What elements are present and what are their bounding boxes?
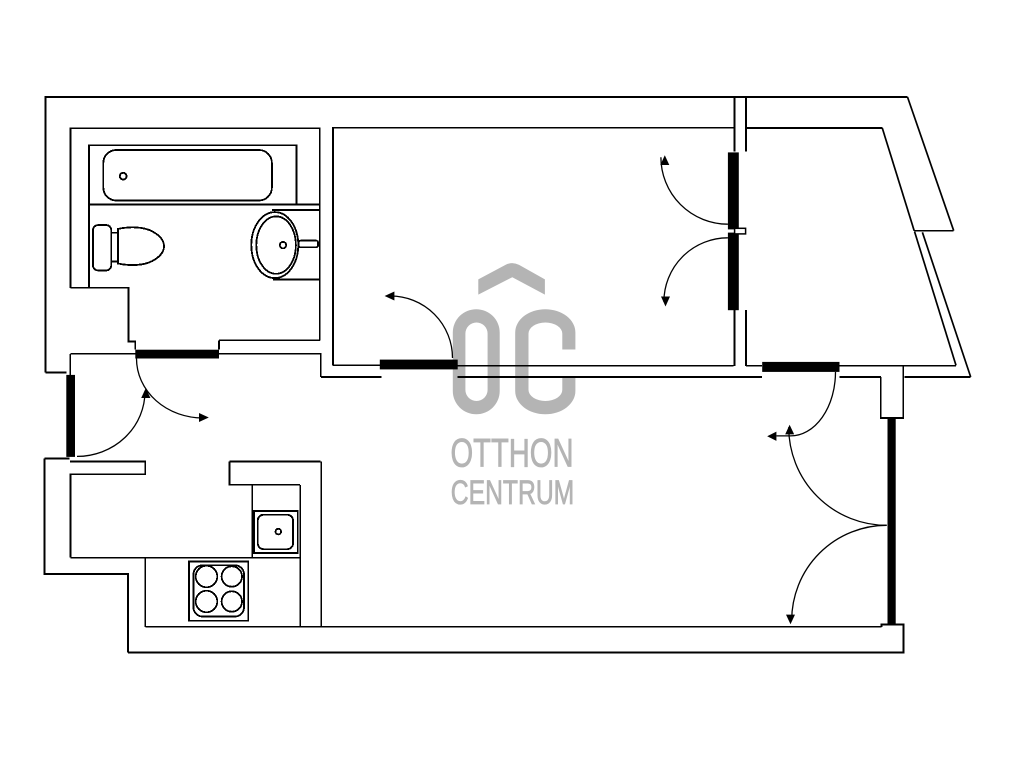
svg-text:OTTHON: OTTHON bbox=[451, 432, 574, 476]
svg-text:CENTRUM: CENTRUM bbox=[451, 474, 575, 512]
